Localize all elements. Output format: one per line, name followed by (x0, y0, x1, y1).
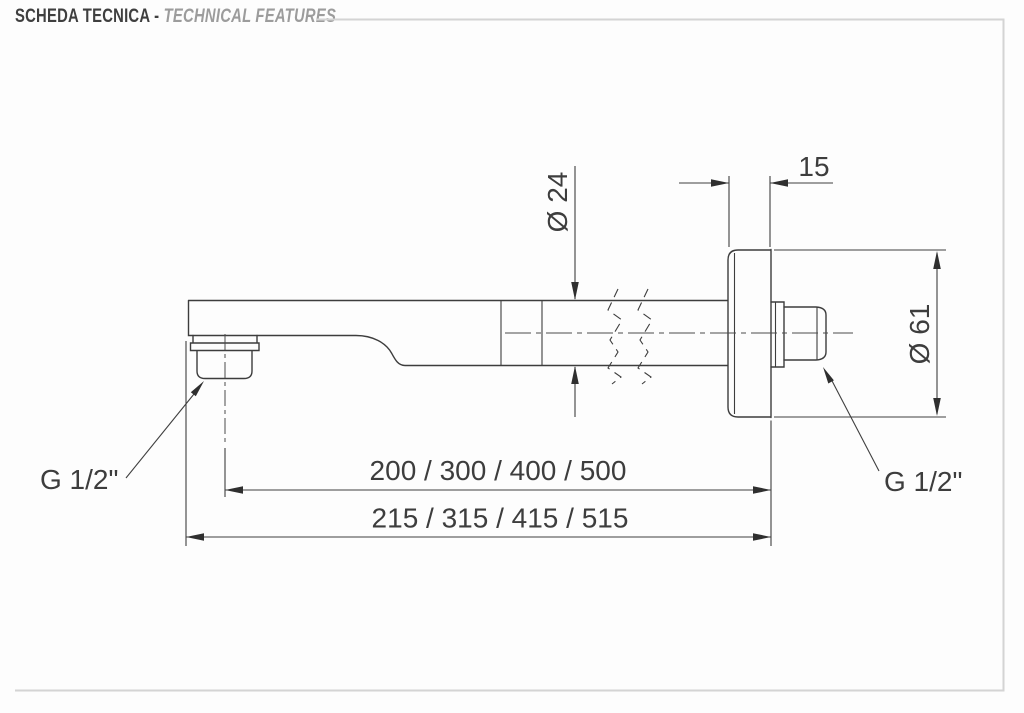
callout-inlet-thread-label: G 1/2" (884, 466, 962, 497)
shower-arm-outline (189, 250, 854, 447)
dim-arm-diameter-label: Ø 24 (542, 172, 573, 233)
dim-flange-thickness-label: 15 (798, 151, 829, 182)
dim-arm-diameter: Ø 24 (542, 166, 579, 417)
sheet-frame (15, 20, 1004, 691)
callout-outlet-thread-label: G 1/2" (40, 464, 118, 495)
inlet-collar (771, 302, 784, 367)
dim-length-overall-label: 215 / 315 / 415 / 515 (372, 503, 629, 534)
dim-flange-thickness: 15 (679, 151, 833, 247)
dim-length-overall: 215 / 315 / 415 / 515 (186, 341, 771, 546)
callout-inlet-thread: G 1/2" (823, 367, 962, 497)
technical-drawing: 15 Ø 24 Ø 61 200 / 300 / 400 / 500 (0, 0, 1024, 713)
dim-length-center-label: 200 / 300 / 400 / 500 (370, 455, 627, 486)
callout-outlet-thread: G 1/2" (40, 381, 204, 495)
dim-flange-diameter-label: Ø 61 (904, 304, 935, 365)
break-line-left (608, 289, 622, 384)
break-line-right (638, 289, 652, 384)
